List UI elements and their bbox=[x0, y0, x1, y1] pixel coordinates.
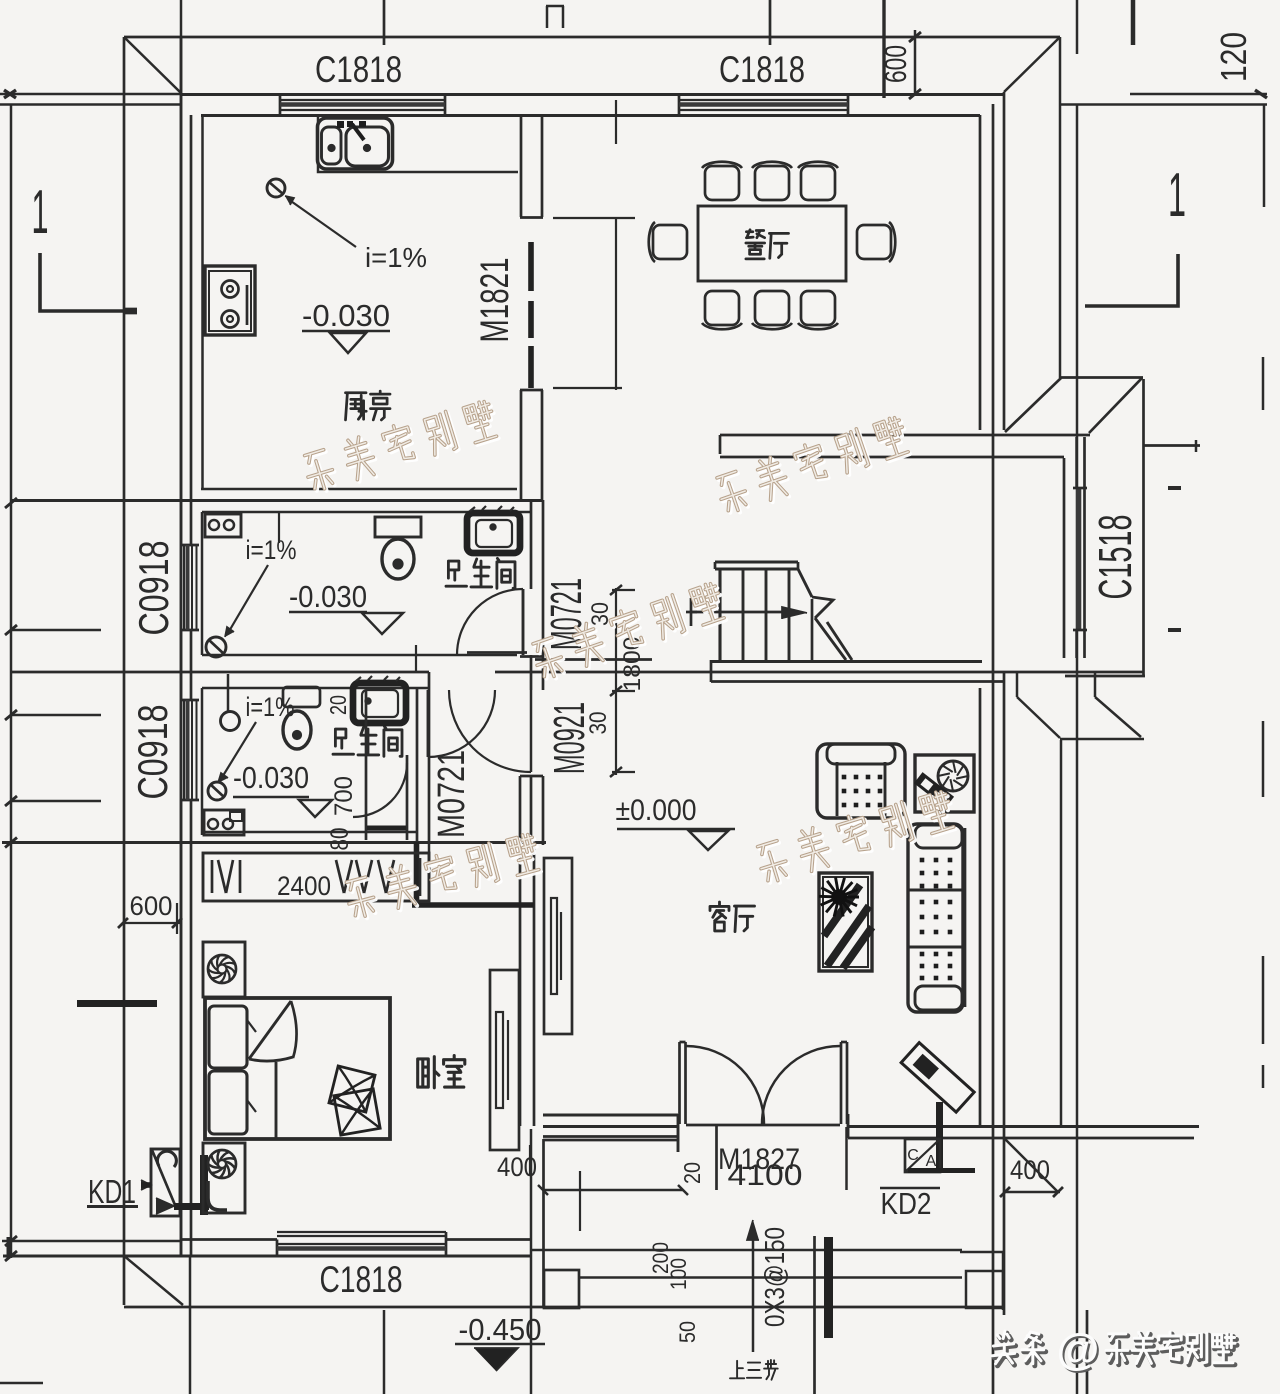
svg-text:C1818: C1818 bbox=[315, 49, 402, 90]
svg-text:50: 50 bbox=[675, 1321, 700, 1343]
svg-text:KD1: KD1 bbox=[88, 1173, 136, 1210]
svg-text:700: 700 bbox=[330, 776, 358, 816]
svg-text:C: C bbox=[907, 1147, 919, 1164]
svg-text:600: 600 bbox=[878, 45, 913, 83]
svg-text:KD2: KD2 bbox=[881, 1186, 932, 1221]
svg-text:1: 1 bbox=[32, 178, 49, 247]
svg-text:0X3@150: 0X3@150 bbox=[759, 1227, 790, 1327]
svg-text:1: 1 bbox=[1168, 161, 1186, 230]
svg-text:-0.030: -0.030 bbox=[233, 760, 309, 795]
svg-text:20: 20 bbox=[325, 695, 351, 715]
svg-text:M0721: M0721 bbox=[431, 750, 473, 838]
svg-text:20: 20 bbox=[679, 1162, 705, 1184]
svg-text:C1818: C1818 bbox=[320, 1259, 403, 1300]
svg-text:400: 400 bbox=[1010, 1155, 1050, 1185]
svg-text:-0.030: -0.030 bbox=[289, 579, 367, 614]
svg-text:100: 100 bbox=[666, 1258, 691, 1290]
svg-text:2400: 2400 bbox=[277, 871, 331, 901]
svg-text:±0.000: ±0.000 bbox=[616, 794, 697, 827]
svg-text:120: 120 bbox=[1213, 32, 1254, 82]
svg-text:C1818: C1818 bbox=[719, 49, 805, 90]
svg-text:C0918: C0918 bbox=[130, 541, 177, 636]
svg-text:-0.450: -0.450 bbox=[459, 1312, 542, 1347]
svg-text:C0918: C0918 bbox=[129, 705, 176, 800]
svg-text:A: A bbox=[926, 1153, 937, 1170]
svg-text:@: @ bbox=[1057, 1325, 1100, 1374]
svg-text:600: 600 bbox=[130, 891, 173, 921]
svg-text:i=1%: i=1% bbox=[246, 535, 297, 565]
svg-text:M1821: M1821 bbox=[473, 258, 517, 343]
svg-text:C1518: C1518 bbox=[1089, 515, 1141, 600]
svg-text:80: 80 bbox=[326, 828, 354, 851]
svg-text:i=1%: i=1% bbox=[246, 692, 295, 722]
svg-text:-0.030: -0.030 bbox=[302, 298, 390, 333]
svg-text:30: 30 bbox=[585, 712, 612, 735]
svg-text:i=1%: i=1% bbox=[365, 242, 427, 273]
svg-text:4100: 4100 bbox=[728, 1159, 803, 1192]
